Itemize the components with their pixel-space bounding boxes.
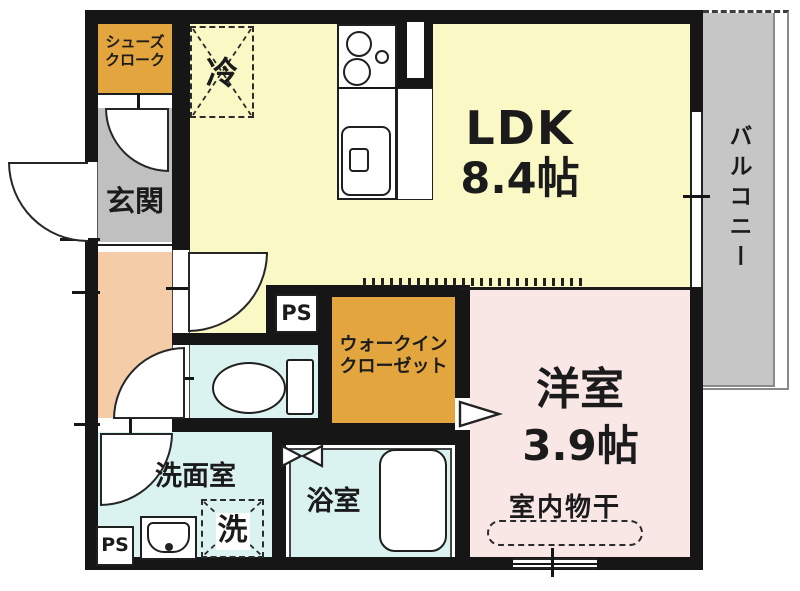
wall-western-left-upper <box>455 288 470 400</box>
pipe-space-lower-label: PS <box>101 534 129 557</box>
refrigerator-icon: 冷 <box>190 26 254 118</box>
window-ldk-balcony-mullion <box>683 195 710 198</box>
stove-burner-large-2-icon <box>343 58 371 86</box>
opening-hall-washroom <box>98 418 172 432</box>
wall-right-lower <box>690 285 703 570</box>
bathroom-folding-door-icon <box>280 443 324 470</box>
stove-burner-large-1-icon <box>346 31 372 57</box>
bathtub-icon <box>379 449 447 552</box>
shoes-closet-label-line1: シューズ <box>98 33 172 51</box>
washbasin-icon <box>140 516 197 560</box>
line-entrance-step <box>98 244 172 246</box>
walk-in-closet-label-line1: ウォークイン <box>332 334 455 356</box>
pipe-space-upper: PS <box>275 294 318 333</box>
wall-left-upper <box>85 10 98 162</box>
washing-machine-label: 洗 <box>216 513 250 550</box>
western-room-size-label: 3.9帖 <box>478 420 683 471</box>
ldk-name-label: LDK <box>420 100 620 156</box>
bathroom-label: 浴室 <box>286 486 381 519</box>
window-western-bottom-line <box>513 563 597 565</box>
tick-left-wall-hall <box>72 291 100 294</box>
line-ldk-western <box>460 287 690 290</box>
wall-western-left-lower <box>455 428 470 557</box>
western-room-name-label: 洋室 <box>480 363 680 417</box>
entrance-label: 玄関 <box>94 184 176 219</box>
wall-closet-top <box>318 285 470 297</box>
kitchen-faucet-icon <box>349 148 369 172</box>
window-ldk-balcony <box>690 112 703 287</box>
window-western-bottom-mullion <box>551 548 554 577</box>
shoes-closet-label-line2: クローク <box>98 51 172 69</box>
kitchen-wall-notch <box>407 22 424 78</box>
indoor-drying-label: 室内物干 <box>470 493 660 525</box>
floor-plan: バルコニー <box>0 0 800 591</box>
toilet-tank-icon <box>286 359 314 415</box>
hatch-ldk-boundary <box>363 278 583 286</box>
walk-in-closet-label: ウォークイン クローゼット <box>332 334 455 378</box>
shoes-closet-label: シューズ クローク <box>98 33 172 70</box>
entrance-door-arc <box>8 162 88 242</box>
kitchen-counter-divider <box>337 87 397 89</box>
walk-in-closet-label-line2: クローゼット <box>332 356 455 378</box>
ldk-size-label: 8.4帖 <box>420 153 620 205</box>
pipe-space-upper-label: PS <box>281 301 312 327</box>
wall-toilet-top <box>172 333 272 345</box>
stove-burner-small-icon <box>375 50 389 64</box>
washbasin-drain-icon <box>165 543 173 551</box>
refrigerator-label: 冷 <box>192 54 252 93</box>
washroom-label: 洗面室 <box>118 461 273 494</box>
balcony-label: バルコニー <box>724 124 752 274</box>
wall-left-lower <box>85 240 98 570</box>
wall-right-upper <box>690 10 703 114</box>
toilet-bowl-icon <box>212 362 286 414</box>
balcony-floor: バルコニー <box>703 13 775 387</box>
opening-shoes-doorway <box>98 95 172 108</box>
washing-machine-icon: 洗 <box>201 499 264 558</box>
pipe-space-lower: PS <box>96 526 134 566</box>
tick-left-wall-washroom <box>74 423 100 426</box>
